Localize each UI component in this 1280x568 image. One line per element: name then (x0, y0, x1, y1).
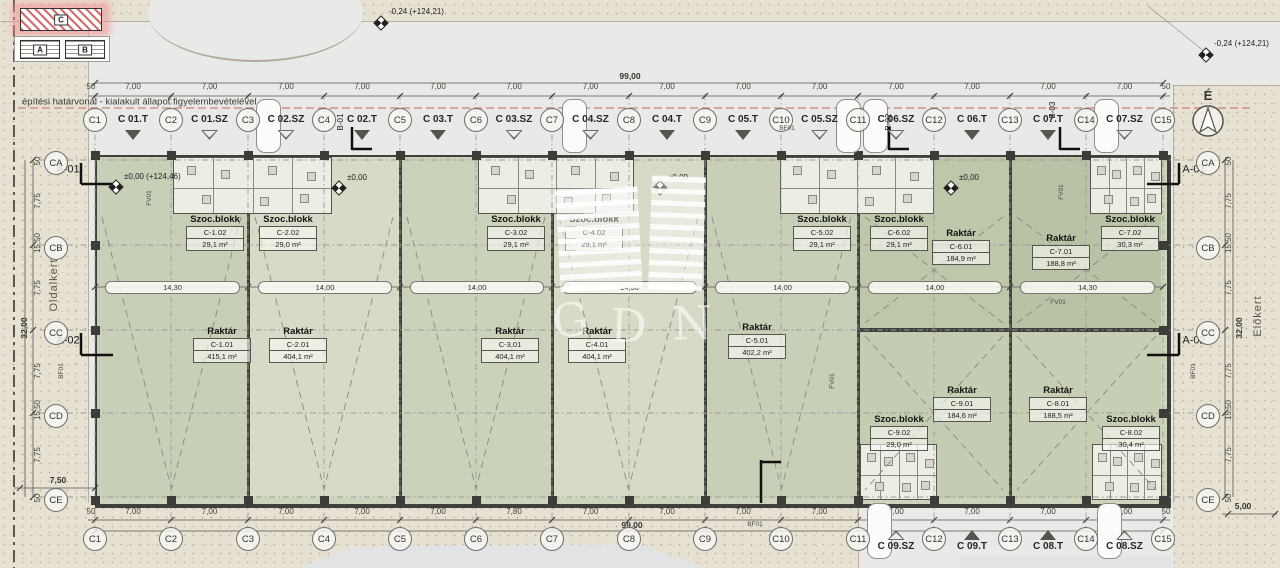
north-arrow: É (1190, 88, 1226, 144)
entry-arrow-icon (735, 130, 751, 140)
column-pilaster (167, 151, 176, 160)
keyplan-block-c-highlight: C (14, 4, 108, 34)
room-area: 404,1 m² (269, 351, 327, 363)
room-label-c-2.02: Szoc.blokkC-2.0229,0 m² (259, 214, 317, 251)
grid-bubble-ce-left: CE (44, 488, 68, 512)
room-code: C-9.01 (933, 397, 991, 410)
room-code: C-1.01 (193, 338, 251, 351)
room-label-c-2.01: RaktárC-2.01404,1 m² (269, 326, 327, 363)
entry-label-top: C 01.SZ (191, 115, 228, 125)
watermark-logo (555, 186, 642, 292)
grid-bubble-c7-top: C7 (540, 108, 564, 132)
room-area: 29,1 m² (186, 239, 244, 251)
grid-bubble-c8-top: C8 (617, 108, 641, 132)
grid-bubble-c9-top: C9 (693, 108, 717, 132)
room-area: 404,1 m² (481, 351, 539, 363)
keyplan-block-a: A (20, 40, 60, 59)
label-fv01: FV01 (1050, 300, 1066, 307)
keyplan-block-c: C (20, 8, 102, 31)
grid-bubble-c9-bottom: C9 (693, 527, 717, 551)
label-bf01: BF01 (779, 126, 795, 133)
entry-label-bottom: C 08.SZ (1106, 542, 1143, 552)
room-code: C-6.01 (932, 240, 990, 253)
room-area: 30,4 m² (1102, 439, 1160, 451)
room-code: C-1.02 (186, 226, 244, 239)
column-pilaster (701, 496, 710, 505)
north-label: É (1190, 88, 1226, 103)
entry-label-bottom: C 08.T (1033, 542, 1063, 552)
room-kind: Raktár (932, 228, 990, 239)
grid-bubble-c13-bottom: C13 (998, 527, 1022, 551)
section-mark-b01: B-01 (337, 114, 345, 131)
grid-bubble-cb-left: CB (44, 236, 68, 260)
room-code: C-3.02 (487, 226, 545, 239)
entry-arrow-icon (964, 530, 980, 540)
grid-bubble-c6-top: C6 (464, 108, 488, 132)
column-pilaster (1006, 151, 1015, 160)
grid-bubble-c2-bottom: C2 (159, 527, 183, 551)
grid-bubble-c15-bottom: C15 (1151, 527, 1175, 551)
room-label-c-3.01: RaktárC-3.01404,1 m² (481, 326, 539, 363)
column-pilaster (244, 151, 253, 160)
room-code: C-8.02 (1102, 426, 1160, 439)
dim-mid-bay: 14,00 (410, 281, 544, 294)
entry-label-top: C 03.SZ (496, 115, 533, 125)
column-pilaster (625, 151, 634, 160)
column-pilaster (91, 496, 100, 505)
grid-bubble-c3-bottom: C3 (236, 527, 260, 551)
entry-arrow-icon (125, 130, 141, 140)
entry-arrow-icon (1040, 130, 1056, 140)
north-arrow-icon (1190, 103, 1226, 139)
grid-bubble-c5-bottom: C5 (388, 527, 412, 551)
grid-bubble-c14-top: C14 (1074, 108, 1098, 132)
room-area: 29,0 m² (870, 439, 928, 451)
column-pilaster (91, 241, 100, 250)
entry-label-top: C 02.T (347, 115, 377, 125)
column-pilaster (930, 496, 939, 505)
column-pilaster (320, 496, 329, 505)
room-area: 404,1 m² (568, 351, 626, 363)
entry-arrow-icon (354, 130, 370, 140)
level-marker-text: -0,24 (+124,21) (389, 8, 444, 16)
room-kind: Raktár (1029, 385, 1087, 396)
keyplan-block-a-label: A (33, 44, 47, 55)
column-pilaster (548, 151, 557, 160)
level-marker-text: ±0,00 (959, 174, 979, 182)
room-kind: Raktár (193, 326, 251, 337)
room-label-c-5.01: RaktárC-5.01402,2 m² (728, 322, 786, 359)
entry-label-top: C 07.T (1033, 115, 1063, 125)
room-area: 29,1 m² (793, 239, 851, 251)
grid-bubble-cd-right: CD (1196, 404, 1220, 428)
entry-label-top: C 04.SZ (572, 115, 609, 125)
column-pilaster (625, 496, 634, 505)
grid-bubble-c2-top: C2 (159, 108, 183, 132)
column-pilaster (1159, 496, 1168, 505)
entry-arrow-icon (1040, 530, 1056, 540)
watermark-letter-g: G (549, 291, 591, 349)
entry-arrow-icon (659, 130, 675, 140)
grid-bubble-cb-right: CB (1196, 236, 1220, 260)
entry-label-top: C 05.SZ (801, 115, 838, 125)
grid-bubble-c4-bottom: C4 (312, 527, 336, 551)
room-label-c-1.01: RaktárC-1.01415,1 m² (193, 326, 251, 363)
room-label-c-6.01: RaktárC-6.01184,9 m² (932, 228, 990, 265)
grid-bubble-cd-left: CD (44, 404, 68, 428)
grid-bubble-ce-right: CE (1196, 488, 1220, 512)
entry-label-top: C 05.T (728, 115, 758, 125)
column-pilaster (91, 151, 100, 160)
floor-plan-canvas: építési határvonal - kialakult állapot f… (0, 0, 1280, 568)
column-pilaster (1159, 241, 1168, 250)
front-yard-label: Előkert (1252, 295, 1264, 336)
column-pilaster (396, 151, 405, 160)
room-kind: Szoc.blokk (259, 214, 317, 225)
column-pilaster (320, 151, 329, 160)
parked-car (1094, 99, 1119, 153)
room-label-c-1.02: Szoc.blokkC-1.0229,1 m² (186, 214, 244, 251)
room-area: 402,2 m² (728, 347, 786, 359)
grid-bubble-c1-top: C1 (83, 108, 107, 132)
entry-label-top: C 01.T (118, 115, 148, 125)
room-code: C-2.01 (269, 338, 327, 351)
entry-label-top: C 07.SZ (1106, 115, 1143, 125)
column-pilaster (1159, 151, 1168, 160)
room-label-c-6.02: Szoc.blokkC-6.0229,1 m² (870, 214, 928, 251)
entry-label-bottom: C 09.SZ (878, 542, 915, 552)
grid-bubble-c3-top: C3 (236, 108, 260, 132)
grid-bubble-c6-bottom: C6 (464, 527, 488, 551)
dim-mid-bay: 14,30 (1020, 281, 1155, 294)
keyplan-block-b-label: B (78, 44, 92, 55)
keyplan-block-b: B (65, 40, 105, 59)
watermark-letter-d: D (609, 298, 649, 354)
column-pilaster (1082, 496, 1091, 505)
room-code: C-5.02 (793, 226, 851, 239)
room-label-c-5.02: Szoc.blokkC-5.0229,1 m² (793, 214, 851, 251)
keyplan-block-c-label: C (54, 14, 68, 25)
grid-bubble-c14-bottom: C14 (1074, 527, 1098, 551)
room-area: 188,8 m² (1032, 258, 1090, 270)
dim-mid-bay: 14,30 (105, 281, 240, 294)
column-pilaster (1082, 151, 1091, 160)
entry-label-top: C 02.SZ (268, 115, 305, 125)
column-pilaster (548, 496, 557, 505)
grid-bubble-c12-top: C12 (922, 108, 946, 132)
entry-label-top: C 04.T (652, 115, 682, 125)
grid-bubble-c12-bottom: C12 (922, 527, 946, 551)
room-area: 29,1 m² (487, 239, 545, 251)
room-code: C-7.02 (1101, 226, 1159, 239)
column-pilaster (854, 496, 863, 505)
room-label-c-7.02: Szoc.blokkC-7.0230,3 m² (1101, 214, 1159, 251)
label-bf01: BF01 (59, 363, 66, 379)
column-pilaster (930, 151, 939, 160)
entry-label-top: C 03.T (423, 115, 453, 125)
grid-bubble-c15-top: C15 (1151, 108, 1175, 132)
grid-bubble-cc-right: CC (1196, 321, 1220, 345)
room-code: C-9.02 (870, 426, 928, 439)
grid-bubble-c11-top: C11 (846, 108, 870, 132)
column-pilaster (91, 326, 100, 335)
watermark-letter-n: N (671, 295, 713, 350)
column-pilaster (1006, 496, 1015, 505)
room-area: 184,6 m² (933, 410, 991, 422)
grid-bubble-c4-top: C4 (312, 108, 336, 132)
level-marker-text: -0,24 (+124,21) (1214, 40, 1269, 48)
column-pilaster (396, 496, 405, 505)
side-yard-label: Oldalkert (48, 258, 60, 311)
room-label-c-7.01: RaktárC-7.01188,8 m² (1032, 233, 1090, 270)
dim-mid-bay: 14,00 (868, 281, 1002, 294)
column-pilaster (1159, 326, 1168, 335)
keyplan: C A B (14, 4, 110, 62)
room-code: C-8.01 (1029, 397, 1087, 410)
room-kind: Raktár (269, 326, 327, 337)
room-label-c-9.01: RaktárC-9.01184,6 m² (933, 385, 991, 422)
entry-label-bottom: C 09.T (957, 542, 987, 552)
room-kind: Szoc.blokk (186, 214, 244, 225)
grid-bubble-ca-right: CA (1196, 151, 1220, 175)
room-code: C-6.02 (870, 226, 928, 239)
entry-label-top: C 06.SZ (878, 115, 915, 125)
room-kind: Szoc.blokk (870, 414, 928, 425)
column-pilaster (167, 496, 176, 505)
dim-mid-bay: 14,00 (715, 281, 850, 294)
room-kind: Szoc.blokk (870, 214, 928, 225)
watermark-logo-2 (648, 175, 706, 291)
grid-bubble-c7-bottom: C7 (540, 527, 564, 551)
room-label-c-3.02: Szoc.blokkC-3.0229,1 m² (487, 214, 545, 251)
label-bf01: BF01 (1191, 363, 1198, 379)
column-pilaster (244, 496, 253, 505)
grid-bubble-c8-bottom: C8 (617, 527, 641, 551)
room-area: 30,3 m² (1101, 239, 1159, 251)
grid-bubble-c10-bottom: C10 (769, 527, 793, 551)
room-code: C-3.01 (481, 338, 539, 351)
room-label-c-8.02: Szoc.blokkC-8.0230,4 m² (1102, 414, 1160, 451)
room-label-c-8.01: RaktárC-8.01188,5 m² (1029, 385, 1087, 422)
column-pilaster (472, 496, 481, 505)
room-kind: Raktár (481, 326, 539, 337)
entry-label-top: C 06.T (957, 115, 987, 125)
column-pilaster (91, 409, 100, 418)
room-kind: Raktár (933, 385, 991, 396)
parked-car (562, 99, 587, 153)
level-marker-text: ±0,00 (+124,46) (124, 173, 181, 181)
entry-arrow-icon (964, 130, 980, 140)
level-marker-text: ±0,00 (347, 174, 367, 182)
room-kind: Szoc.blokk (1101, 214, 1159, 225)
label-fv01: FV01 (830, 373, 837, 389)
room-kind: Raktár (728, 322, 786, 333)
column-pilaster (701, 151, 710, 160)
column-pilaster (777, 151, 786, 160)
label-bf01: BF01 (747, 522, 763, 529)
grid-bubble-c5-top: C5 (388, 108, 412, 132)
room-area: 188,5 m² (1029, 410, 1087, 422)
grid-bubble-c11-bottom: C11 (846, 527, 870, 551)
label-fv01: FV01 (147, 190, 154, 206)
room-label-c-9.02: Szoc.blokkC-9.0229,0 m² (870, 414, 928, 451)
grid-bubble-c1-bottom: C1 (83, 527, 107, 551)
room-code: C-5.01 (728, 334, 786, 347)
entry-arrow-icon (430, 130, 446, 140)
label-fv01: FV01 (1059, 184, 1066, 200)
room-code: C-7.01 (1032, 245, 1090, 258)
room-area: 415,1 m² (193, 351, 251, 363)
keyplan-panel-ab: A B (14, 36, 110, 62)
room-area: 29,1 m² (870, 239, 928, 251)
room-kind: Szoc.blokk (487, 214, 545, 225)
room-kind: Szoc.blokk (793, 214, 851, 225)
grid-bubble-ca-left: CA (44, 151, 68, 175)
room-area: 184,9 m² (932, 253, 990, 265)
column-pilaster (777, 496, 786, 505)
room-area: 29,0 m² (259, 239, 317, 251)
column-pilaster (472, 151, 481, 160)
dim-mid-bay: 14,00 (258, 281, 392, 294)
parked-car (256, 99, 281, 153)
room-kind: Raktár (1032, 233, 1090, 244)
grid-bubble-c13-top: C13 (998, 108, 1022, 132)
grid-bubble-cc-left: CC (44, 321, 68, 345)
room-code: C-2.02 (259, 226, 317, 239)
room-kind: Szoc.blokk (1102, 414, 1160, 425)
